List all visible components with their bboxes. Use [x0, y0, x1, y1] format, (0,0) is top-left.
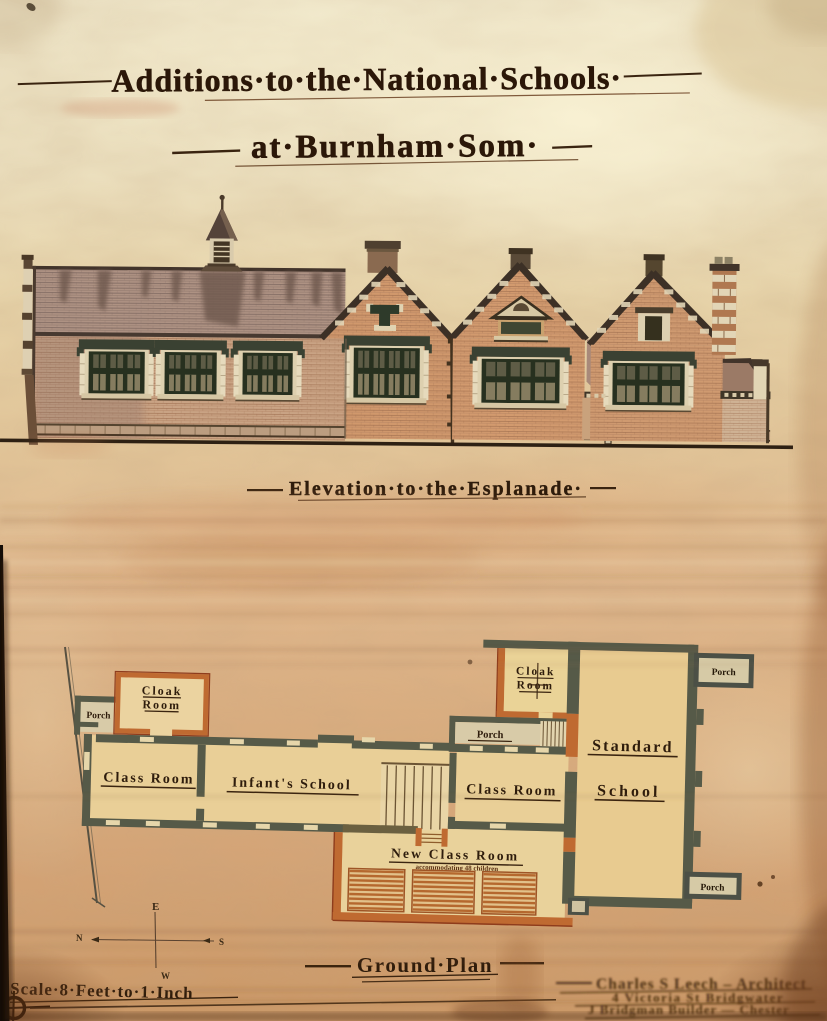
- svg-text:E: E: [152, 901, 159, 913]
- svg-text:Porch: Porch: [712, 668, 737, 679]
- svg-text:Porch: Porch: [477, 729, 504, 741]
- svg-text:Standard: Standard: [592, 737, 674, 756]
- svg-text:Ground·Plan: Ground·Plan: [357, 953, 493, 977]
- svg-text:Class Room: Class Room: [103, 770, 195, 787]
- svg-text:Room: Room: [142, 697, 181, 712]
- svg-text:Additions·to·the·National·Scho: Additions·to·the·National·Schools·: [111, 59, 622, 98]
- svg-text:New Class Room: New Class Room: [391, 845, 520, 863]
- svg-text:School: School: [597, 782, 661, 801]
- svg-text:Cloak: Cloak: [142, 683, 183, 698]
- svg-text:Porch: Porch: [700, 883, 725, 894]
- svg-text:W: W: [161, 971, 170, 981]
- svg-text:Room: Room: [516, 679, 554, 692]
- svg-text:Porch: Porch: [86, 711, 111, 722]
- svg-text:at·Burnham·Som·: at·Burnham·Som·: [251, 128, 540, 166]
- svg-text:Infant's School: Infant's School: [232, 776, 352, 794]
- svg-text:Cloak: Cloak: [516, 665, 556, 678]
- svg-text:N: N: [76, 933, 83, 943]
